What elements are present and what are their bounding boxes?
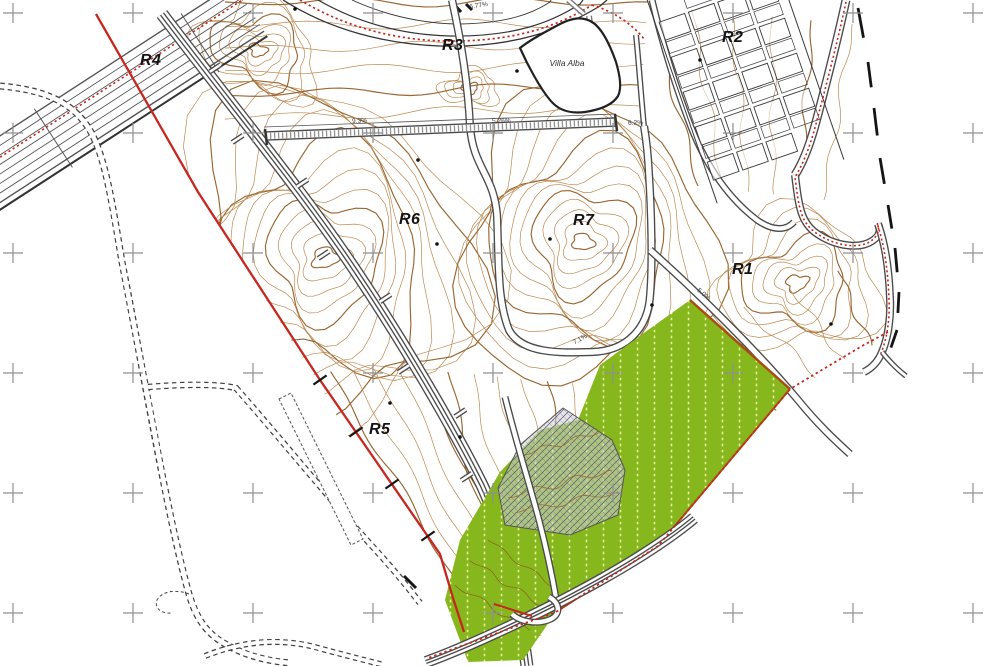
parcels-r2 (641, 0, 844, 203)
site-plan-map: R1 R2 R3 R4 R5 R6 R7 Villa Alba 6.77% 5.… (0, 0, 1000, 666)
villa-alba-parcel (520, 18, 620, 112)
plan-drawing (0, 0, 1000, 666)
causeway-road (264, 114, 617, 145)
existing-dashed-roads (0, 86, 420, 665)
